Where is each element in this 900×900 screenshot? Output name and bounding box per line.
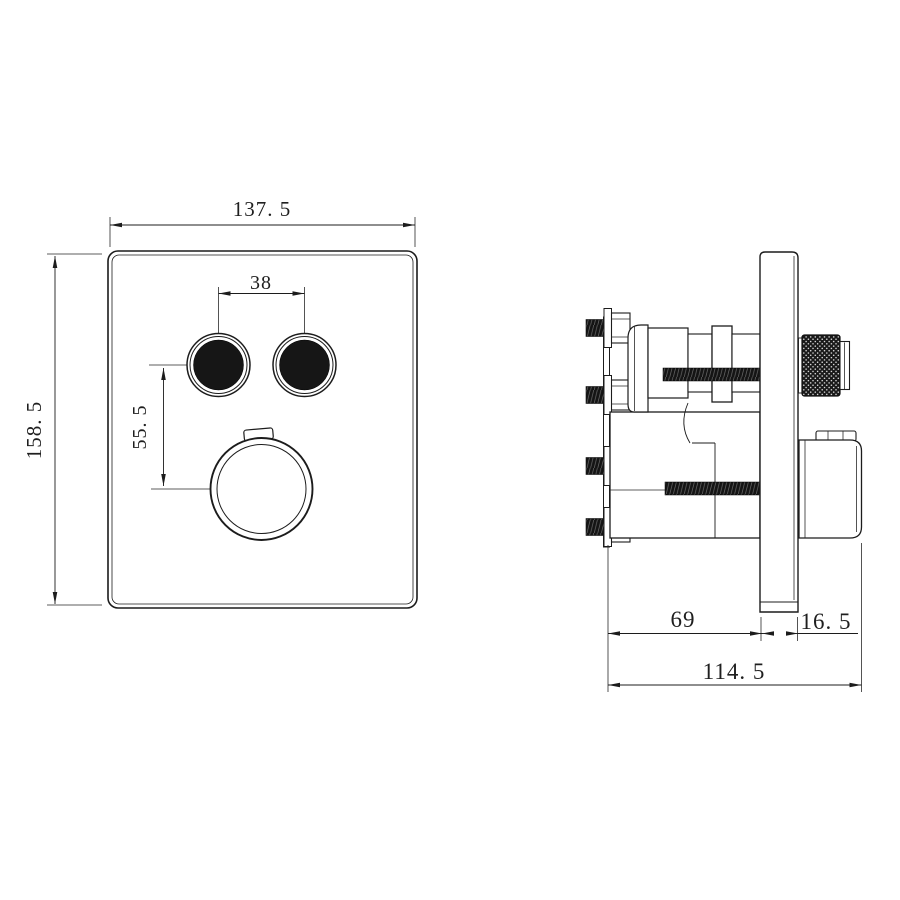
dim-panel-height-label: 158. 5 <box>22 401 46 460</box>
dim-button-spacing-label: 38 <box>250 272 272 294</box>
dim-total-depth-label: 114. 5 <box>703 659 766 684</box>
dim-panel-height: 158. 5 <box>22 254 102 605</box>
push-button-right <box>273 334 336 397</box>
port-2 <box>586 376 630 415</box>
face-plate-side <box>760 252 798 612</box>
push-button-left <box>187 334 250 397</box>
temperature-knob-side <box>799 335 850 396</box>
front-view: 38 55. 5 137. 5 <box>22 197 417 608</box>
technical-drawing: 38 55. 5 137. 5 <box>0 0 900 900</box>
dim-panel-width-label: 137. 5 <box>233 197 292 221</box>
valve-body <box>610 403 760 538</box>
cartridge-locknut <box>712 326 732 402</box>
dim-panel-width: 137. 5 <box>110 197 415 247</box>
dim-trim-depth-label: 16. 5 <box>801 609 852 634</box>
dim-button-to-knob-label: 55. 5 <box>129 405 151 450</box>
dim-body-depth-label: 69 <box>671 607 696 632</box>
push-button-left-face <box>194 340 244 390</box>
knurled-grip <box>802 335 840 396</box>
volume-knob-side <box>799 431 862 538</box>
threaded-rod-bottom <box>665 482 762 495</box>
threaded-rod-top <box>663 368 762 381</box>
push-button-right-face <box>280 340 330 390</box>
port-1 <box>586 309 630 348</box>
side-view: 69 16. 5 114. 5 <box>586 252 862 692</box>
dim-trim-depth: 16. 5 <box>762 609 858 641</box>
drawing-canvas: 38 55. 5 137. 5 <box>0 0 900 900</box>
